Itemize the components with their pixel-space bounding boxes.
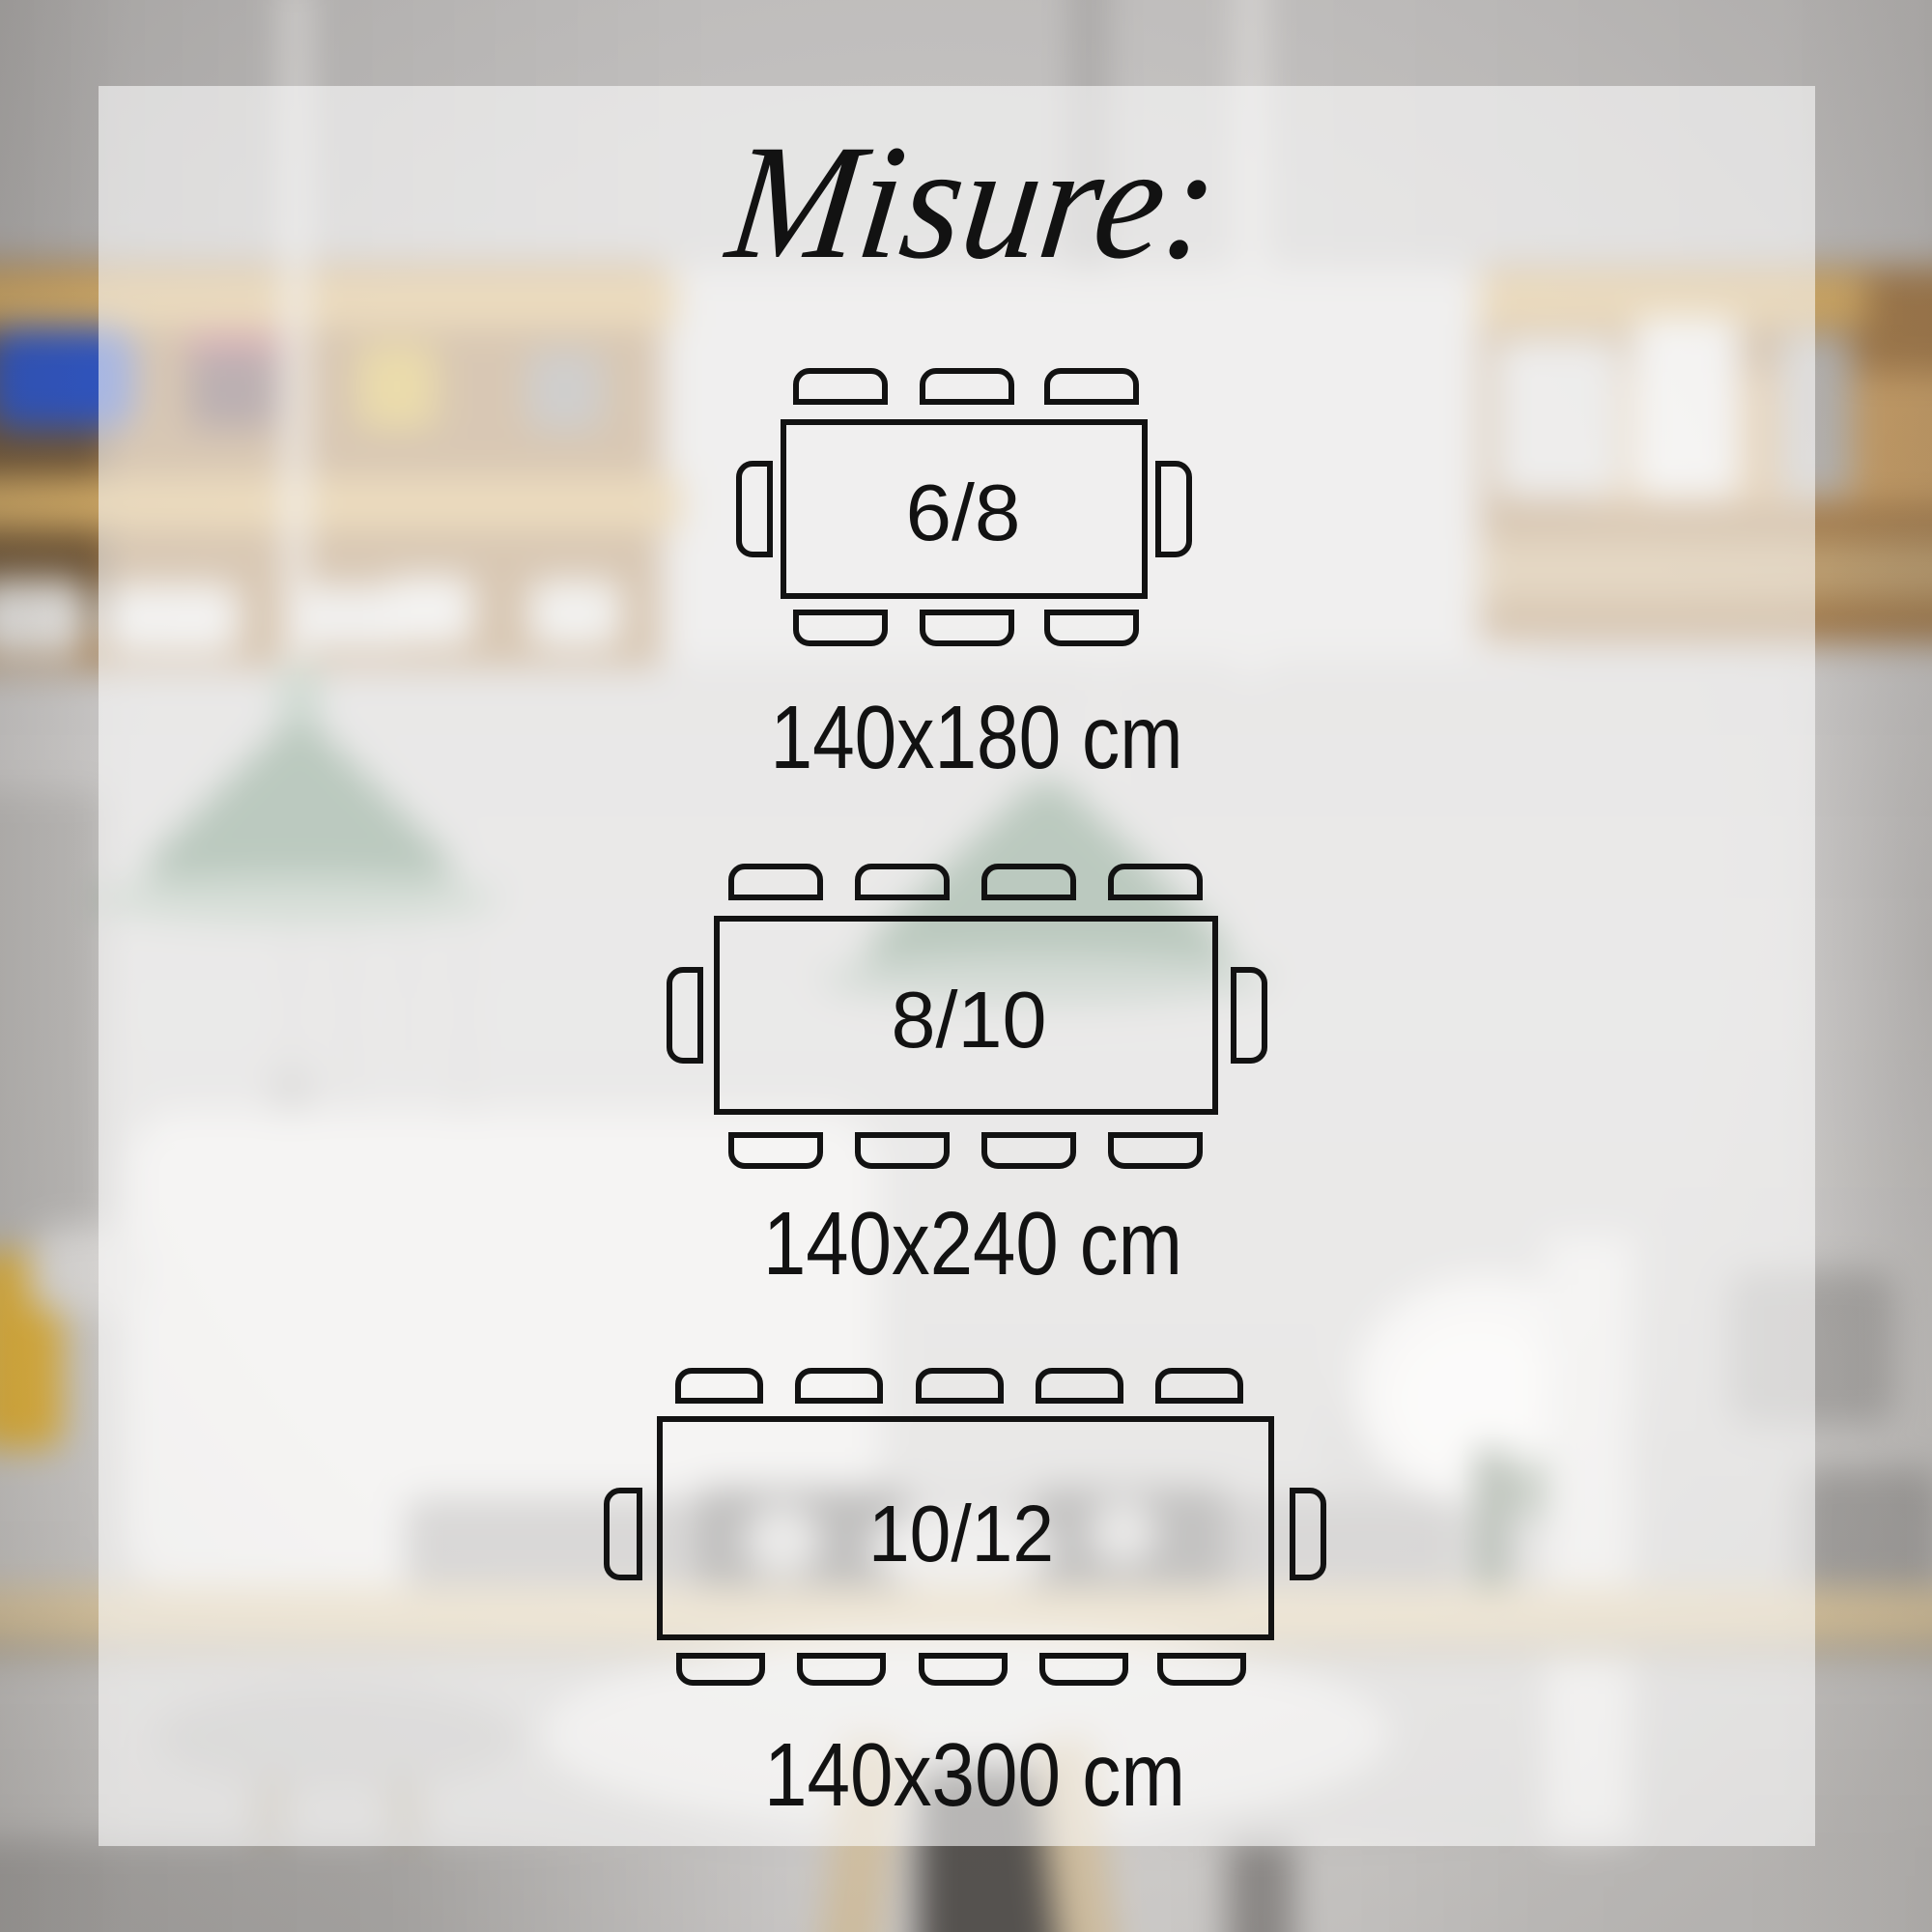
- svg-text:6/8: 6/8: [906, 468, 1021, 557]
- svg-text:10/12: 10/12: [868, 1489, 1054, 1578]
- svg-text:Misure:: Misure:: [718, 111, 1228, 293]
- svg-text:8/10: 8/10: [892, 975, 1047, 1065]
- svg-text:140x240 cm: 140x240 cm: [763, 1193, 1182, 1293]
- svg-text:140x180 cm: 140x180 cm: [771, 687, 1183, 787]
- svg-text:140x300 cm: 140x300 cm: [764, 1724, 1185, 1825]
